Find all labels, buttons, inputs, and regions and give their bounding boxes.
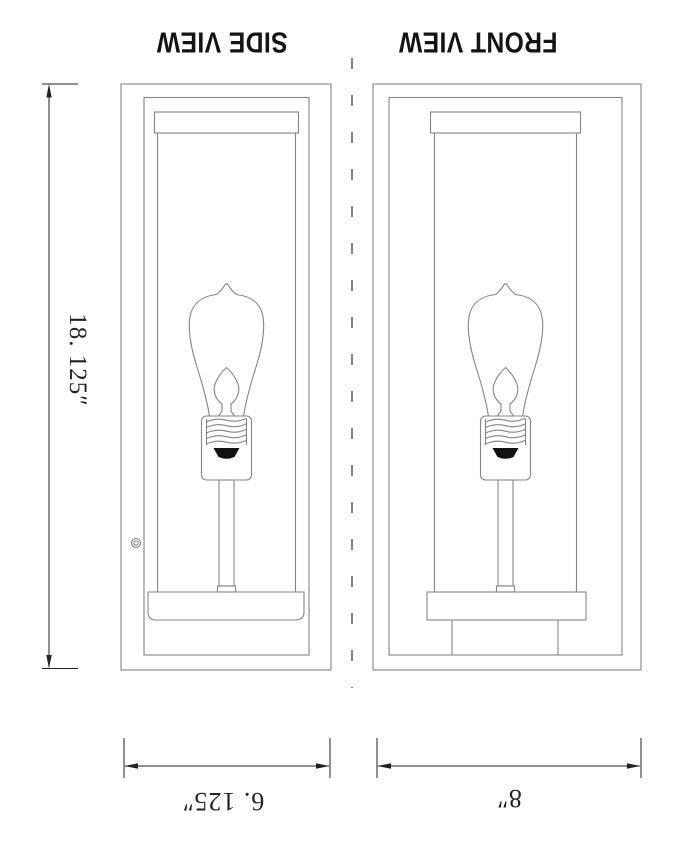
side-set-screw	[132, 539, 141, 548]
technical-drawing-sheet: SIDE VIEW FRONT VIEW 18. 125″ 6. 125″ 8″	[0, 0, 680, 850]
front-base-plate	[427, 592, 586, 620]
front-back-plate	[452, 620, 558, 655]
arrow-right-icon	[316, 763, 330, 768]
side-socket-contact	[214, 448, 240, 459]
arrow-right-icon	[627, 763, 641, 768]
arrow-left-icon	[378, 763, 392, 768]
side-width-dimension	[124, 738, 330, 778]
front-inner-frame	[389, 98, 622, 656]
side-bulb-outline	[189, 284, 263, 417]
side-outer-frame	[121, 84, 331, 670]
side-glass-cap	[155, 112, 299, 133]
arrow-down-icon	[46, 655, 51, 669]
front-outer-frame	[373, 84, 641, 670]
side-view-drawing	[121, 84, 331, 670]
side-inner-frame	[144, 98, 309, 656]
side-bulb-filament	[214, 368, 239, 417]
side-socket-threads	[207, 418, 247, 445]
front-socket-contact	[493, 448, 519, 459]
side-stem	[219, 480, 234, 586]
side-mounting-bracket	[148, 592, 304, 620]
arrow-left-icon	[125, 763, 139, 768]
front-socket-threads	[486, 418, 526, 445]
front-stem	[498, 480, 513, 586]
front-width-dimension	[377, 738, 641, 778]
height-dimension	[42, 84, 78, 669]
front-bulb-outline	[468, 284, 542, 417]
front-glass-cap	[431, 112, 581, 133]
arrow-up-icon	[46, 84, 51, 98]
line-drawing	[0, 0, 680, 850]
front-stem-connector	[497, 586, 515, 592]
side-stem-connector	[218, 586, 236, 592]
front-bulb-filament	[493, 368, 518, 417]
front-view-drawing	[373, 84, 641, 670]
